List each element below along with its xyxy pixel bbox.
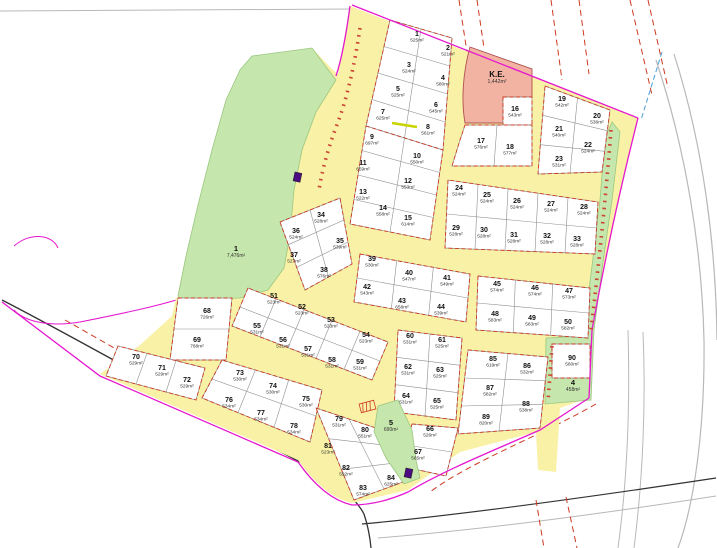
parcel-label-number: 19: [558, 96, 566, 103]
parcel-label-number: 87: [486, 385, 494, 392]
parcel-label-number: 86: [523, 363, 531, 370]
parcel-label-area: 560m²: [565, 361, 579, 367]
parcel-label-number: 45: [493, 281, 501, 288]
parcel-label-number: 21: [555, 126, 563, 133]
parcel-label-number: 3: [407, 62, 411, 69]
parcel-label-number: 70: [132, 354, 140, 361]
parcel-label-area: 531m²: [325, 363, 339, 369]
parcel-label-number: 46: [531, 285, 539, 292]
parcel-label-area: 540m²: [552, 132, 566, 138]
parcel-label-area: 580m²: [436, 81, 450, 87]
parcel-label-number: 53: [327, 317, 335, 324]
parcel-label-number: 78: [290, 423, 298, 430]
parcel-label-number: 63: [436, 367, 444, 374]
parcel-label-area: 528m²: [507, 238, 521, 244]
parcel-label-area: 582m²: [483, 391, 497, 397]
parcel-block: [458, 350, 548, 434]
green-area-label-area: 7,476m²: [227, 253, 246, 259]
transformer-marker: [404, 468, 413, 478]
parcel-label-number: 54: [362, 332, 370, 339]
parcel-label-number: 23: [555, 156, 563, 163]
social-area-label-area: 1,442m²: [487, 79, 506, 85]
parcel-label-area: 531m²: [399, 399, 413, 405]
parcel-label-area: 530m²: [299, 402, 313, 408]
parcel-label-number: 18: [506, 144, 514, 151]
green-area-label-number: 5: [389, 418, 393, 427]
parcel-label-number: 85: [489, 356, 497, 363]
green-area-label-number: 1: [234, 244, 238, 253]
parcel-label-area: 525m²: [430, 404, 444, 410]
parcel-label-number: 34: [317, 212, 325, 219]
parcel-label-number: 4: [441, 75, 445, 82]
parcel-label-number: 42: [363, 284, 371, 291]
parcel-label-number: 24: [455, 185, 463, 192]
parcel-label-area: 583m²: [525, 321, 539, 327]
parcel-label-area: 523m²: [359, 338, 373, 344]
parcel-label-area: 574m²: [528, 291, 542, 297]
parcel-label-area: 536m²: [590, 119, 604, 125]
parcel-label-number: 39: [368, 256, 376, 263]
parcel-label-number: 14: [379, 205, 387, 212]
parcel-label-number: 41: [443, 275, 451, 282]
parcel-label-number: 22: [584, 142, 592, 149]
parcel-label-area: 531m²: [403, 339, 417, 345]
parcel-label-area: 768m²: [190, 343, 204, 349]
parcel-label-number: 83: [359, 485, 367, 492]
social-area-label: K.E.1,442m²: [487, 70, 506, 85]
parcel-label-number: 48: [491, 311, 499, 318]
parcel-label-number: 15: [404, 215, 412, 222]
parcel-label-area: 545m²: [429, 108, 443, 114]
parcel-label-number: 9: [370, 134, 374, 141]
parcel-label-number: 56: [279, 337, 287, 344]
parcel-label-area: 565m²: [411, 455, 425, 461]
parcel-label-number: 66: [426, 426, 434, 433]
parcel-label-area: 550m²: [410, 159, 424, 165]
parcel-label-area: 528m²: [570, 242, 584, 248]
parcel-label-number: 89: [482, 414, 490, 421]
parcel-label-area: 534m²: [254, 416, 268, 422]
parcel-label-area: 543m²: [508, 112, 522, 118]
parcel-label-area: 573m²: [562, 294, 576, 300]
parcel-label-area: 527m²: [287, 258, 301, 264]
parcel-label-area: 592m²: [339, 471, 353, 477]
parcel-label-number: 81: [324, 443, 332, 450]
parcel-label-number: 90: [568, 355, 576, 362]
parcel-label-area: 521m²: [441, 51, 455, 57]
parcel-label-area: 582m²: [561, 325, 575, 331]
parcel-label-number: 58: [328, 357, 336, 364]
parcel-label-area: 524m²: [577, 210, 591, 216]
parcel-label-area: 531m²: [276, 343, 290, 349]
parcel-label-number: 40: [405, 270, 413, 277]
parcel-label-number: 44: [437, 304, 445, 311]
social-area-label-number: K.E.: [489, 70, 505, 79]
parcel-label-area: 531m²: [332, 422, 346, 428]
parcel-label-area: 561m²: [421, 130, 435, 136]
parcel-label-area: 529m²: [180, 383, 194, 389]
parcel-label-area: 574m²: [356, 491, 370, 497]
parcel-label-area: 524m²: [510, 204, 524, 210]
parcel-label-area: 526m²: [423, 432, 437, 438]
parcel-label-area: 523m²: [267, 299, 281, 305]
parcel-label-number: 69: [193, 337, 201, 344]
parcel-label-number: 35: [336, 238, 344, 245]
parcel-label-number: 60: [406, 333, 414, 340]
parcel-label-number: 67: [414, 449, 422, 456]
parcel-label-number: 65: [433, 398, 441, 405]
parcel-label-number: 25: [483, 192, 491, 199]
parcel-label-area: 532m²: [520, 369, 534, 375]
parcel-label-area: 530m²: [365, 262, 379, 268]
parcel-label-number: 51: [270, 293, 278, 300]
parcel-label-number: 57: [304, 346, 312, 353]
parcel-label-number: 74: [269, 383, 277, 390]
parcel-label-area: 539m²: [434, 310, 448, 316]
parcel-label-area: 542m²: [555, 102, 569, 108]
parcel-label-number: 7: [381, 109, 385, 116]
parcel-label-area: 524m²: [480, 198, 494, 204]
parcel-label-area: 525m²: [435, 343, 449, 349]
green-area-label-area: 458m²: [566, 387, 581, 393]
parcel-label-area: 576m²: [317, 273, 331, 279]
parcel-label-area: 531m²: [353, 365, 367, 371]
parcel-label-area: 523m²: [324, 323, 338, 329]
parcel-label-area: 659m²: [356, 166, 370, 172]
parcel-label-number: 38: [320, 267, 328, 274]
parcel-label-area: 523m²: [295, 310, 309, 316]
parcel-label-number: 84: [387, 475, 395, 482]
parcel-label-area: 574m²: [490, 287, 504, 293]
parcel-label-area: 583m²: [488, 317, 502, 323]
subdivision-map: 1525m²2521m²3524m²4580m²5525m²6545m²7625…: [0, 0, 717, 548]
parcel-label-area: 625m²: [384, 481, 398, 487]
parcel-label-number: 11: [359, 160, 367, 167]
parcel-label-area: 528m²: [477, 233, 491, 239]
parcel-label-area: 529m²: [155, 371, 169, 377]
parcel-label-number: 72: [183, 377, 191, 384]
parcel-label-area: 528m²: [449, 231, 463, 237]
parcel-label-number: 8: [426, 124, 430, 131]
parcel-label-area: 531m²: [250, 329, 264, 335]
parcel-label-number: 20: [593, 113, 601, 120]
parcel-label-number: 76: [225, 397, 233, 404]
parcel-label-number: 29: [452, 225, 460, 232]
parcel-label-number: 61: [438, 337, 446, 344]
parcel-label-area: 538m²: [519, 407, 533, 413]
parcel-label-area: 531m²: [401, 370, 415, 376]
parcel-label-area: 547m²: [402, 276, 416, 282]
parcel-label-area: 524m²: [581, 148, 595, 154]
parcel-label-number: 62: [404, 364, 412, 371]
parcel-label-area: 531m²: [301, 352, 315, 358]
parcel-label-area: 820m²: [479, 420, 493, 426]
parcel-block: [452, 125, 532, 166]
parcel-label-area: 529m²: [129, 360, 143, 366]
parcel-label-number: 33: [573, 236, 581, 243]
parcel-label-area: 553m²: [401, 184, 415, 190]
parcel-label-number: 36: [292, 228, 300, 235]
parcel-label-number: 75: [302, 396, 310, 403]
parcel-label-area: 658m²: [395, 304, 409, 310]
parcel-label-number: 88: [522, 401, 530, 408]
parcel-label-area: 534m²: [287, 429, 301, 435]
parcel-label-area: 576m²: [474, 144, 488, 150]
parcel-label-area: 525m²: [391, 92, 405, 98]
parcel-label-number: 10: [413, 153, 421, 160]
parcel-label-area: 531m²: [552, 162, 566, 168]
transformer-marker: [293, 172, 302, 182]
parcel-label-number: 30: [480, 227, 488, 234]
parcel-label-number: 13: [359, 189, 367, 196]
parcel-label-number: 73: [236, 370, 244, 377]
parcel-label-number: 55: [253, 323, 261, 330]
parcel-label-number: 82: [342, 465, 350, 472]
parcel-label-number: 31: [510, 232, 518, 239]
parcel-label-number: 64: [402, 393, 410, 400]
parcel-label-number: 71: [158, 365, 166, 372]
parcel-label-area: 528m²: [540, 239, 554, 245]
parcel-label-area: 528m²: [314, 218, 328, 224]
parcel-label-number: 37: [290, 252, 298, 259]
parcel-label-area: 551m²: [358, 433, 372, 439]
parcel-label-number: 16: [511, 106, 519, 113]
parcel-label-area: 523m²: [321, 449, 335, 455]
parcel-label-number: 28: [580, 204, 588, 211]
green-area-label-area: 690m²: [384, 427, 399, 433]
parcel-label-area: 524m²: [289, 234, 303, 240]
parcel-label-number: 50: [564, 319, 572, 326]
parcel-label-area: 726m²: [200, 314, 214, 320]
parcel-label-number: 52: [298, 304, 306, 311]
parcel-label-number: 26: [513, 198, 521, 205]
parcel-label-number: 6: [434, 102, 438, 109]
parcel-label-area: 614m²: [401, 221, 415, 227]
parcel-label-area: 525m²: [433, 373, 447, 379]
parcel-label-area: 524m²: [544, 207, 558, 213]
parcel-label-number: 2: [446, 45, 450, 52]
parcel-label-number: 17: [477, 138, 485, 145]
parcel-label-number: 79: [335, 416, 343, 423]
cadastral-plan-page: 1525m²2521m²3524m²4580m²5525m²6545m²7625…: [0, 0, 717, 548]
parcel-label-number: 80: [361, 427, 369, 434]
parcel-label-number: 32: [543, 233, 551, 240]
parcel-label-area: 549m²: [440, 281, 454, 287]
parcel-label-area: 524m²: [452, 191, 466, 197]
parcel-label-area: 625m²: [376, 115, 390, 121]
parcel-label-area: 697m²: [365, 140, 379, 146]
parcel-label-area: 525m²: [410, 37, 424, 43]
parcel-label-number: 77: [257, 410, 265, 417]
parcel-label-area: 543m²: [360, 290, 374, 296]
parcel-label-number: 1: [415, 31, 419, 38]
parcel-label-number: 47: [565, 288, 573, 295]
parcel-label-area: 530m²: [233, 376, 247, 382]
parcel-label-area: 524m²: [402, 68, 416, 74]
parcel-label-number: 49: [528, 315, 536, 322]
parcel-label-area: 558m²: [376, 211, 390, 217]
parcel-label-area: 522m²: [356, 195, 370, 201]
parcel-label-area: 530m²: [266, 389, 280, 395]
parcel-label-area: 534m²: [222, 403, 236, 409]
parcel-label-number: 5: [396, 86, 400, 93]
parcel-label-number: 12: [404, 178, 412, 185]
parcel-label-area: 539m²: [333, 244, 347, 250]
parcel-label-number: 43: [398, 298, 406, 305]
parcel-label-area: 577m²: [503, 150, 517, 156]
parcel-label-number: 68: [203, 308, 211, 315]
parcel-label-number: 59: [356, 359, 364, 366]
parcel-label-number: 27: [547, 201, 555, 208]
parcel-label-area: 619m²: [486, 362, 500, 368]
